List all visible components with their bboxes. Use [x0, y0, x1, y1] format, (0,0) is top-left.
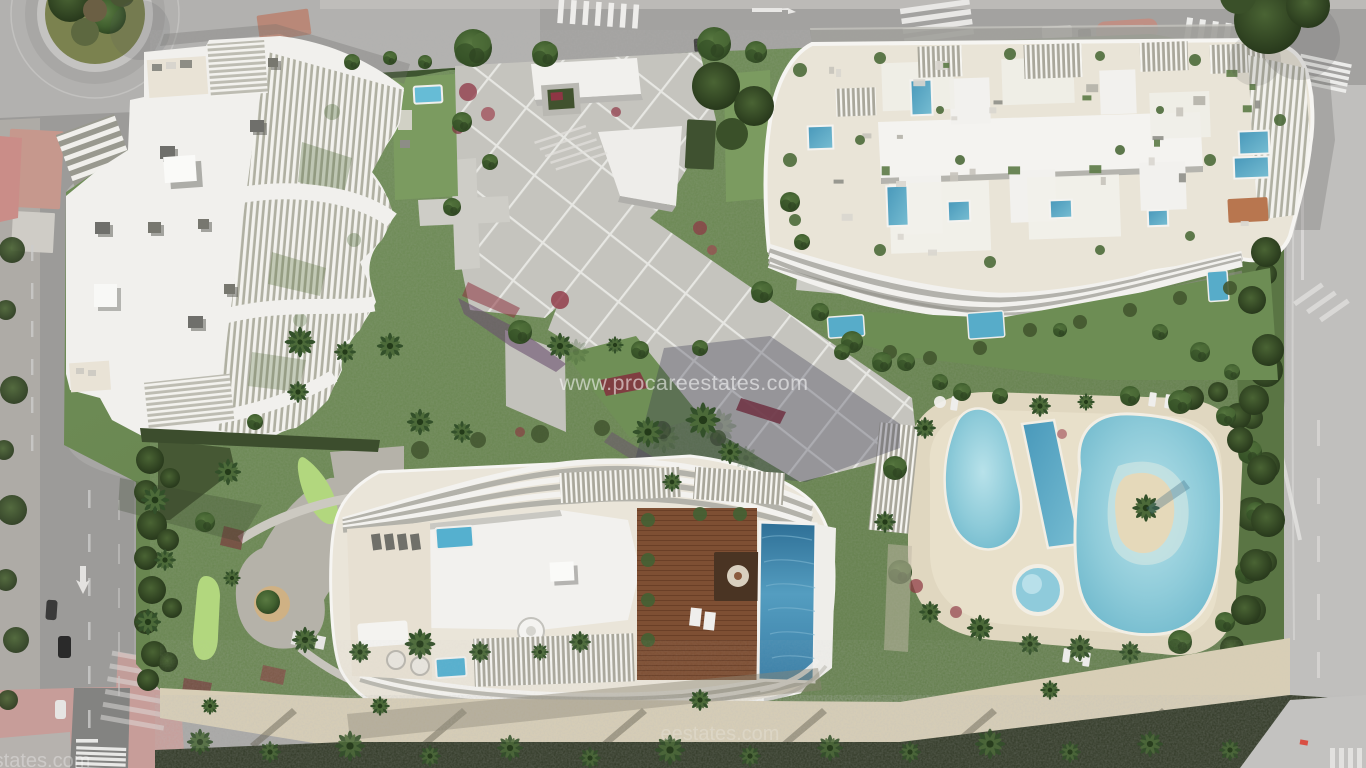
svg-text:states.com: states.com	[0, 750, 90, 768]
svg-text:www.procareestates.com: www.procareestates.com	[559, 371, 809, 395]
svg-text:eestates.com: eestates.com	[661, 723, 780, 745]
